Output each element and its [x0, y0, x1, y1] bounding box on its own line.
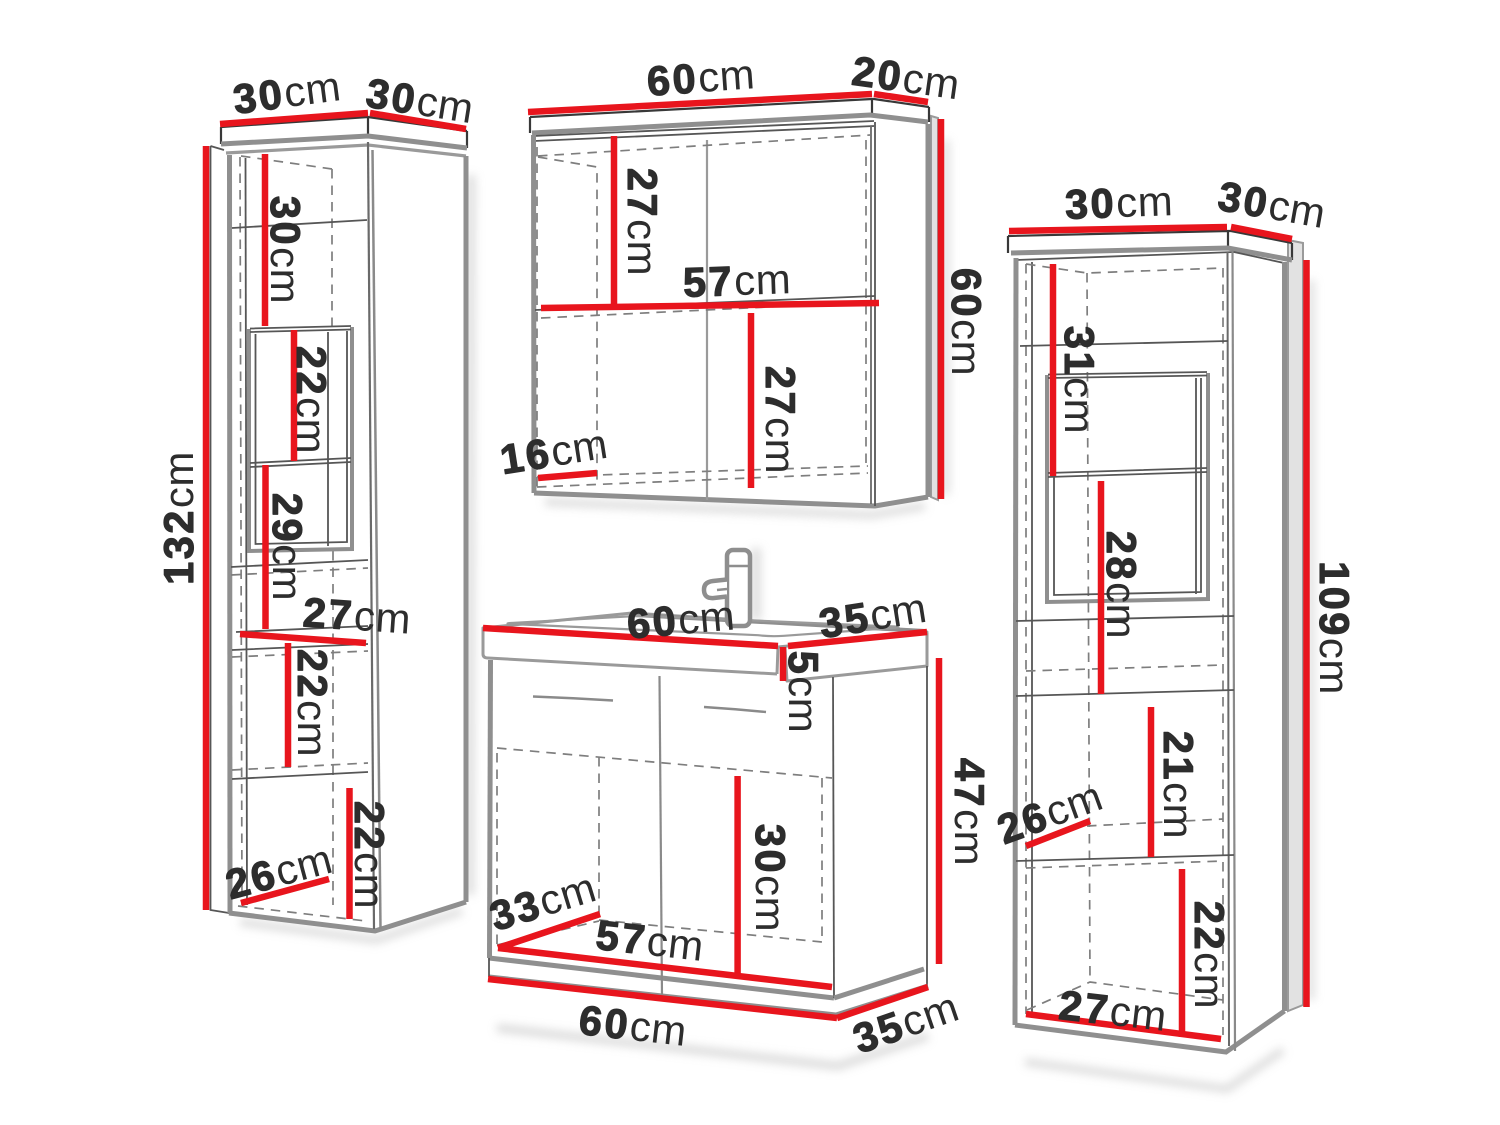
svg-text:109cm: 109cm — [1311, 561, 1358, 695]
svg-text:29cm: 29cm — [264, 493, 311, 601]
svg-text:27cm: 27cm — [301, 588, 412, 642]
svg-text:60cm: 60cm — [943, 268, 990, 376]
svg-text:132cm: 132cm — [155, 451, 202, 585]
svg-text:31cm: 31cm — [1056, 326, 1103, 434]
svg-text:22cm: 22cm — [346, 801, 393, 909]
svg-text:22cm: 22cm — [1186, 901, 1233, 1009]
svg-text:27cm: 27cm — [619, 168, 666, 276]
svg-text:28cm: 28cm — [1098, 531, 1145, 639]
svg-text:30cm: 30cm — [262, 196, 309, 304]
svg-text:22cm: 22cm — [289, 649, 336, 757]
svg-text:21cm: 21cm — [1155, 731, 1202, 839]
svg-text:57cm: 57cm — [682, 255, 792, 306]
svg-text:47cm: 47cm — [946, 758, 993, 866]
svg-text:22cm: 22cm — [288, 346, 335, 454]
svg-text:27cm: 27cm — [757, 366, 804, 474]
svg-text:60cm: 60cm — [625, 591, 737, 647]
svg-text:60cm: 60cm — [645, 50, 756, 104]
svg-text:5cm: 5cm — [780, 651, 827, 734]
svg-text:30cm: 30cm — [747, 824, 794, 932]
svg-text:30cm: 30cm — [1064, 177, 1174, 228]
